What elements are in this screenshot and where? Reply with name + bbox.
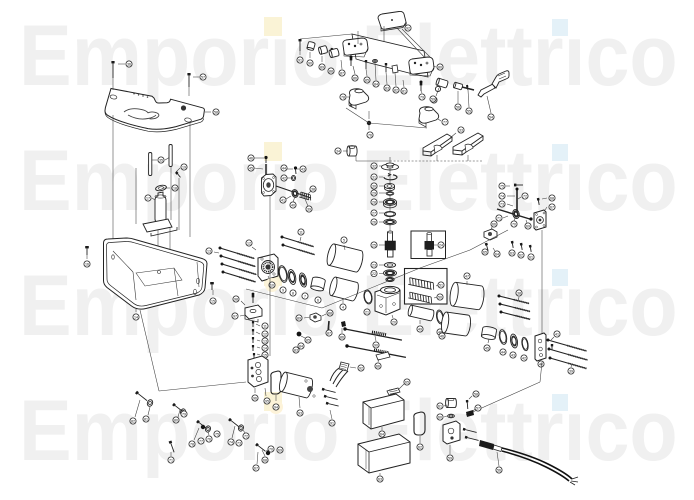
- svg-text:98: 98: [234, 297, 238, 301]
- svg-text:65: 65: [483, 250, 487, 254]
- svg-text:62: 62: [418, 445, 422, 449]
- svg-text:16: 16: [85, 262, 89, 266]
- svg-text:42: 42: [522, 356, 526, 360]
- svg-text:97: 97: [233, 314, 237, 318]
- svg-text:73: 73: [500, 202, 504, 206]
- svg-text:94: 94: [274, 405, 278, 409]
- svg-text:79: 79: [182, 412, 186, 416]
- svg-text:77: 77: [443, 120, 447, 124]
- svg-text:84: 84: [374, 82, 378, 86]
- svg-text:41: 41: [281, 198, 285, 202]
- svg-text:49: 49: [418, 327, 422, 331]
- svg-text:90: 90: [374, 343, 378, 347]
- svg-text:40: 40: [539, 362, 543, 366]
- svg-text:69: 69: [278, 448, 282, 452]
- svg-text:38: 38: [517, 291, 521, 295]
- svg-text:78: 78: [341, 95, 345, 99]
- svg-text:25: 25: [372, 243, 376, 247]
- svg-text:12: 12: [247, 241, 251, 245]
- svg-text:67: 67: [254, 466, 258, 470]
- svg-text:62: 62: [519, 253, 523, 257]
- svg-text:54: 54: [489, 115, 493, 119]
- svg-text:92: 92: [406, 26, 410, 30]
- svg-text:63: 63: [510, 251, 514, 255]
- svg-text:13: 13: [207, 249, 211, 253]
- svg-text:56: 56: [456, 105, 460, 109]
- svg-text:19: 19: [182, 165, 186, 169]
- svg-text:71: 71: [497, 216, 501, 220]
- svg-text:38: 38: [311, 187, 315, 191]
- svg-text:10: 10: [270, 283, 274, 287]
- svg-text:42: 42: [282, 176, 286, 180]
- svg-text:89: 89: [297, 316, 301, 320]
- svg-text:93: 93: [298, 411, 302, 415]
- svg-text:85: 85: [306, 338, 310, 342]
- svg-text:27: 27: [372, 211, 376, 215]
- svg-text:28: 28: [372, 200, 376, 204]
- svg-text:80: 80: [174, 418, 178, 422]
- svg-text:87: 87: [327, 331, 331, 335]
- svg-text:56: 56: [497, 468, 501, 472]
- svg-text:58: 58: [214, 110, 218, 114]
- svg-text:72: 72: [244, 434, 248, 438]
- svg-text:71: 71: [169, 458, 173, 462]
- svg-text:88: 88: [329, 69, 333, 73]
- svg-text:14: 14: [263, 346, 267, 350]
- svg-text:76: 76: [368, 133, 372, 137]
- svg-text:84: 84: [299, 344, 303, 348]
- svg-text:18: 18: [173, 186, 177, 190]
- svg-text:14: 14: [134, 315, 138, 319]
- svg-text:90: 90: [308, 61, 312, 65]
- svg-text:23: 23: [372, 263, 376, 267]
- svg-text:46: 46: [440, 334, 444, 338]
- svg-text:66: 66: [376, 364, 380, 368]
- svg-text:95: 95: [265, 399, 269, 403]
- svg-text:6: 6: [317, 298, 319, 302]
- svg-text:80: 80: [438, 65, 442, 69]
- svg-text:4: 4: [342, 305, 344, 309]
- svg-text:24: 24: [439, 243, 443, 247]
- svg-text:91: 91: [330, 421, 334, 425]
- svg-text:61: 61: [529, 255, 533, 259]
- svg-text:81: 81: [402, 89, 406, 93]
- svg-text:29: 29: [372, 191, 376, 195]
- svg-text:15: 15: [211, 299, 215, 303]
- svg-text:13: 13: [263, 339, 267, 343]
- svg-text:92: 92: [359, 366, 363, 370]
- svg-text:68: 68: [263, 458, 267, 462]
- svg-text:81: 81: [144, 417, 148, 421]
- svg-text:34: 34: [336, 149, 340, 153]
- svg-text:39: 39: [569, 369, 573, 373]
- svg-text:59: 59: [448, 456, 452, 460]
- svg-text:41: 41: [555, 332, 559, 336]
- svg-text:65: 65: [405, 380, 409, 384]
- svg-text:46: 46: [249, 156, 253, 160]
- svg-text:35: 35: [159, 158, 163, 162]
- svg-text:91: 91: [298, 58, 302, 62]
- svg-text:83: 83: [385, 86, 389, 90]
- svg-text:45: 45: [249, 166, 253, 170]
- svg-text:60: 60: [438, 415, 442, 419]
- svg-text:82: 82: [131, 419, 135, 423]
- svg-text:21: 21: [365, 310, 369, 314]
- svg-text:72: 72: [523, 194, 527, 198]
- svg-text:74: 74: [500, 194, 504, 198]
- svg-text:57: 57: [476, 406, 480, 410]
- svg-text:74: 74: [229, 440, 233, 444]
- svg-text:43: 43: [301, 167, 305, 171]
- svg-text:33: 33: [459, 128, 463, 132]
- svg-text:86: 86: [353, 76, 357, 80]
- svg-text:58: 58: [474, 392, 478, 396]
- svg-text:59: 59: [431, 97, 435, 101]
- svg-text:82: 82: [394, 88, 398, 92]
- svg-text:9: 9: [282, 288, 284, 292]
- svg-text:12: 12: [263, 332, 267, 336]
- svg-text:5: 5: [343, 238, 345, 242]
- svg-text:44: 44: [282, 166, 286, 170]
- svg-text:44: 44: [501, 350, 505, 354]
- svg-text:40: 40: [291, 203, 295, 207]
- svg-text:17: 17: [146, 196, 150, 200]
- svg-text:43: 43: [511, 353, 515, 357]
- svg-text:51: 51: [439, 283, 443, 287]
- svg-text:45: 45: [485, 346, 489, 350]
- svg-text:79: 79: [420, 95, 424, 99]
- svg-text:26: 26: [372, 220, 376, 224]
- svg-text:70: 70: [512, 222, 516, 226]
- svg-text:7: 7: [304, 294, 306, 298]
- svg-text:87: 87: [340, 71, 344, 75]
- svg-text:30: 30: [372, 184, 376, 188]
- svg-text:78: 78: [190, 442, 194, 446]
- svg-text:61: 61: [438, 404, 442, 408]
- svg-text:64: 64: [495, 252, 499, 256]
- svg-text:89: 89: [320, 65, 324, 69]
- svg-text:36: 36: [127, 62, 131, 66]
- svg-text:55: 55: [467, 109, 471, 113]
- svg-text:96: 96: [253, 396, 257, 400]
- svg-text:67: 67: [550, 205, 554, 209]
- svg-text:85: 85: [365, 78, 369, 82]
- svg-text:31: 31: [372, 175, 376, 179]
- svg-text:32: 32: [372, 164, 376, 168]
- svg-text:73: 73: [237, 441, 241, 445]
- svg-text:75: 75: [500, 184, 504, 188]
- svg-text:50: 50: [438, 295, 442, 299]
- svg-text:75: 75: [215, 432, 219, 436]
- svg-text:76: 76: [207, 437, 211, 441]
- svg-text:77: 77: [199, 439, 203, 443]
- svg-text:70: 70: [269, 447, 273, 451]
- svg-text:11: 11: [299, 230, 303, 234]
- svg-text:66: 66: [492, 222, 496, 226]
- svg-text:22: 22: [372, 272, 376, 276]
- svg-text:68: 68: [550, 196, 554, 200]
- svg-text:11: 11: [263, 324, 267, 328]
- svg-text:69: 69: [526, 224, 530, 228]
- svg-text:88: 88: [328, 311, 332, 315]
- svg-text:83: 83: [294, 348, 298, 352]
- svg-text:57: 57: [201, 75, 205, 79]
- svg-text:47: 47: [465, 274, 469, 278]
- svg-text:20: 20: [392, 320, 396, 324]
- svg-text:64: 64: [380, 432, 384, 436]
- svg-text:39: 39: [307, 207, 311, 211]
- svg-text:8: 8: [292, 291, 294, 295]
- svg-text:86: 86: [340, 335, 344, 339]
- svg-text:63: 63: [378, 477, 382, 481]
